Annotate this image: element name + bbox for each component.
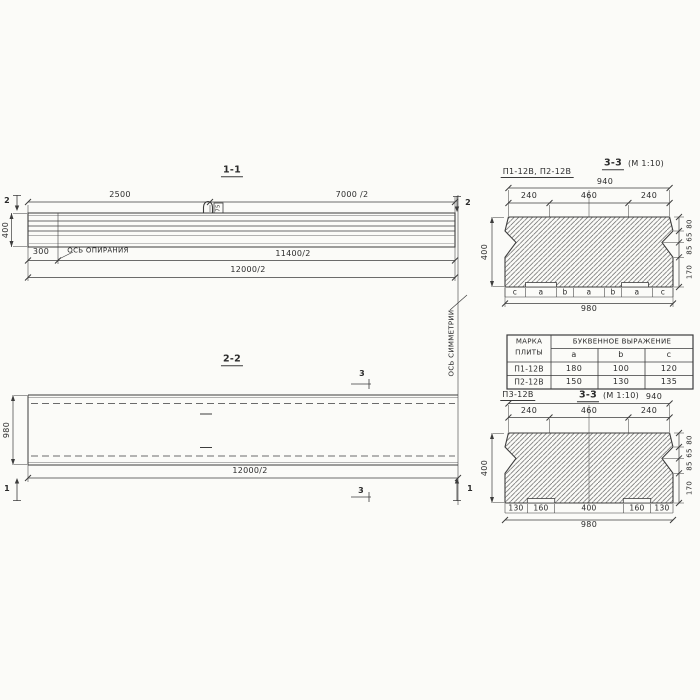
dim-label-240-b: 240 <box>641 192 657 200</box>
dim-label-400-s33b: 400 <box>481 460 489 476</box>
dim-label-12000-2: 12000/2 <box>230 266 265 274</box>
side-dim-85-b: 85 <box>687 461 694 471</box>
table-row2-mark: П2-12В <box>514 378 544 386</box>
dim-label-12000-2-plan: 12000/2 <box>232 467 267 475</box>
side-dim-65: 65 <box>687 232 694 242</box>
letter-a-3: a <box>635 288 640 296</box>
bottom-dim-400: 400 <box>581 504 596 512</box>
dim-label-7000-2: 7000 /2 <box>336 191 369 199</box>
section-marker-1-left <box>13 478 21 501</box>
dim-label-980-s33b: 980 <box>581 521 597 529</box>
dim-label-240-c: 240 <box>521 407 537 415</box>
table-header-mark-2: ПЛИТЫ <box>515 350 543 357</box>
plates-label-p1-p2: П1-12В, П2-12В <box>501 168 574 178</box>
marker-1-left-label: 1 <box>4 485 10 493</box>
table-row1-b: 100 <box>613 365 629 373</box>
scale-label-bottom: (М 1:10) <box>603 392 639 400</box>
section-3-3-bot-title: 3-3 <box>577 390 599 402</box>
side-dim-80-b: 80 <box>687 435 694 445</box>
scale-label-top: (М 1:10) <box>628 160 664 168</box>
letter-c-2: c <box>661 288 665 296</box>
section-marker-2-right <box>453 196 461 212</box>
section-marker-1-right <box>453 478 461 501</box>
table-header-mark-1: МАРКА <box>516 339 542 346</box>
beam-outline <box>28 213 455 247</box>
table-row2-a: 150 <box>566 378 582 386</box>
marker-3-top-label: 3 <box>359 370 365 378</box>
section-2-2-drawing <box>11 379 461 502</box>
side-dim-80: 80 <box>687 219 694 229</box>
dim-label-240-a: 240 <box>521 192 537 200</box>
side-dim-85: 85 <box>687 245 694 255</box>
section-2-2-title: 2-2 <box>221 354 243 366</box>
bottom-dim-160-2: 160 <box>629 504 644 512</box>
dim-400-vertical <box>10 213 28 247</box>
marker-2-left-label: 2 <box>4 197 10 205</box>
dim-label-240-d: 240 <box>641 407 657 415</box>
dim-label-400-left: 400 <box>2 222 10 238</box>
center-mark-dashes <box>200 414 212 448</box>
table-header-expression: БУКВЕННОЕ ВЫРАЖЕНИЕ <box>573 339 672 346</box>
dim-label-980-left: 980 <box>3 422 11 438</box>
dim-label-940-bottom: 940 <box>646 393 662 401</box>
hatched-cross-section <box>505 217 673 287</box>
bottom-dim-160-1: 160 <box>533 504 548 512</box>
bottom-dim-130-1: 130 <box>508 504 523 512</box>
dim-label-400-s33t: 400 <box>481 244 489 260</box>
letter-a-1: a <box>539 288 544 296</box>
table-row1-a: 180 <box>566 365 582 373</box>
letter-a-2: a <box>587 288 592 296</box>
section-marker-3-top <box>351 379 371 389</box>
letter-b-2: b <box>610 288 615 296</box>
plate-label-p3: П3-12В <box>500 391 535 401</box>
table-col-b: b <box>618 351 623 359</box>
table-col-c: c <box>667 351 672 359</box>
dim-label-11400-2: 11400/2 <box>275 250 310 258</box>
dim-label-2500: 2500 <box>109 191 131 199</box>
dim-label-300: 300 <box>33 248 49 256</box>
hatched-cross-section <box>505 433 673 503</box>
table-row2-c: 135 <box>661 378 677 386</box>
table-row1-mark: П1-12В <box>514 365 544 373</box>
marker-2-right-label: 2 <box>465 199 471 207</box>
side-dim-65-b: 65 <box>687 448 694 458</box>
table-row1-c: 120 <box>661 365 677 373</box>
section-1-1-title: 1-1 <box>221 165 243 177</box>
dim-label-460: 460 <box>581 192 597 200</box>
letter-b-1: b <box>562 288 567 296</box>
table-row2-b: 130 <box>613 378 629 386</box>
dim-label-460-b: 460 <box>581 407 597 415</box>
drawing-linework <box>0 0 700 700</box>
letter-c-1: c <box>513 288 517 296</box>
bottom-dim-130-2: 130 <box>654 504 669 512</box>
marker-1-right-label: 1 <box>467 485 473 493</box>
side-dim-170-b: 170 <box>687 481 694 495</box>
support-axis-label: ОСЬ ОПИРАНИЯ <box>67 248 128 255</box>
engineering-drawing-sheet: 1-1 2500 7000 /2 2 2 400 300 ОСЬ ОПИРАНИ… <box>0 0 700 700</box>
slab-plan-outline <box>28 395 458 465</box>
section-marker-2-left <box>13 195 21 211</box>
dim-980-vertical <box>11 395 27 465</box>
dim-label-940-top: 940 <box>597 178 613 186</box>
side-dim-170: 170 <box>687 265 694 279</box>
dim-label-980-s33t: 980 <box>581 305 597 313</box>
symmetry-axis-label: ОСЬ СИММЕТРИИ <box>449 310 456 377</box>
marker-3-bottom-label: 3 <box>358 487 364 495</box>
lifting-loop-label: 75 <box>216 204 222 212</box>
section-3-3-top-title: 3-3 <box>602 158 624 170</box>
table-col-a: a <box>571 351 576 359</box>
